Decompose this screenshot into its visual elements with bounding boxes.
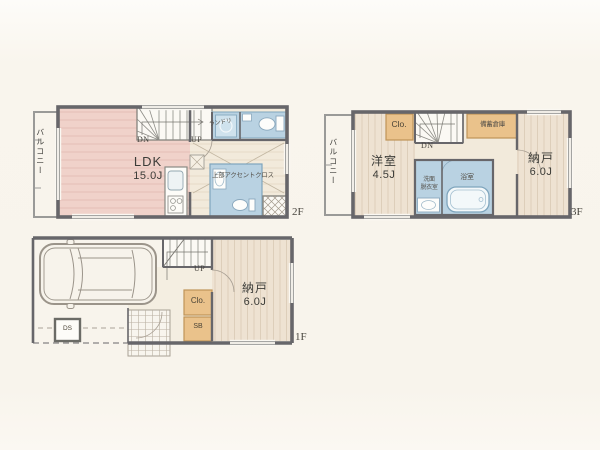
floor-tag-3f: 3F <box>571 206 583 218</box>
floor-tag-1f: 1F <box>295 331 307 343</box>
floor-tag-2f: 2F <box>292 206 304 218</box>
shoe-box-label-1f: SB <box>184 323 212 331</box>
toilet-room-2f <box>240 112 287 138</box>
balcony-label-2f: バルコニー <box>35 128 44 176</box>
room-size-nando-3f: 6.0J <box>512 166 570 178</box>
stairs-dn-label-2f: DN <box>137 136 150 145</box>
room-label-yoshitsu: 洋室 <box>354 155 414 168</box>
void-hatch-2f <box>263 196 287 217</box>
stock-storage-label-3f: 備蓄倉庫 <box>465 121 520 128</box>
toilet-bowl-icon <box>233 200 248 211</box>
washroom-label-line2: 脱衣室 <box>413 185 445 192</box>
room-size-ldk: 15.0J <box>113 170 183 182</box>
room-label-nando-1f: 納戸 <box>225 282 285 295</box>
bathroom-3f <box>442 160 493 215</box>
room-label-nando-3f: 納戸 <box>512 152 570 165</box>
duct-space-label-1f: DS <box>55 325 80 332</box>
entrance-1f <box>128 310 170 356</box>
closet-label-3f: Clo. <box>385 120 413 129</box>
washroom-label-line1: 洗面 <box>413 177 445 184</box>
toilet-bowl-icon <box>259 118 275 130</box>
closet-label-1f: Clo. <box>184 297 212 306</box>
room-size-nando-1f: 6.0J <box>225 296 285 308</box>
stairs-dn-label-3f: DN <box>421 142 434 151</box>
stairs-up-label-1f: UP <box>194 265 205 274</box>
stairs-3f <box>415 112 463 143</box>
room-size-yoshitsu: 4.5J <box>354 169 414 181</box>
toilet-tank-icon <box>276 116 284 131</box>
car-icon <box>40 240 156 309</box>
stairs-up-label-2f: UP <box>191 136 202 145</box>
balcony-label-3f: バルコニー <box>328 138 337 186</box>
room-label-ldk: LDK <box>113 155 183 169</box>
floorplan-page: { "floor2": { "balcony": "バルコニー", "ldk":… <box>0 0 600 450</box>
bath-label-3f: 浴室 <box>447 174 487 182</box>
accent-cloth-note-2f: 上部アクセントクロス <box>212 172 274 179</box>
